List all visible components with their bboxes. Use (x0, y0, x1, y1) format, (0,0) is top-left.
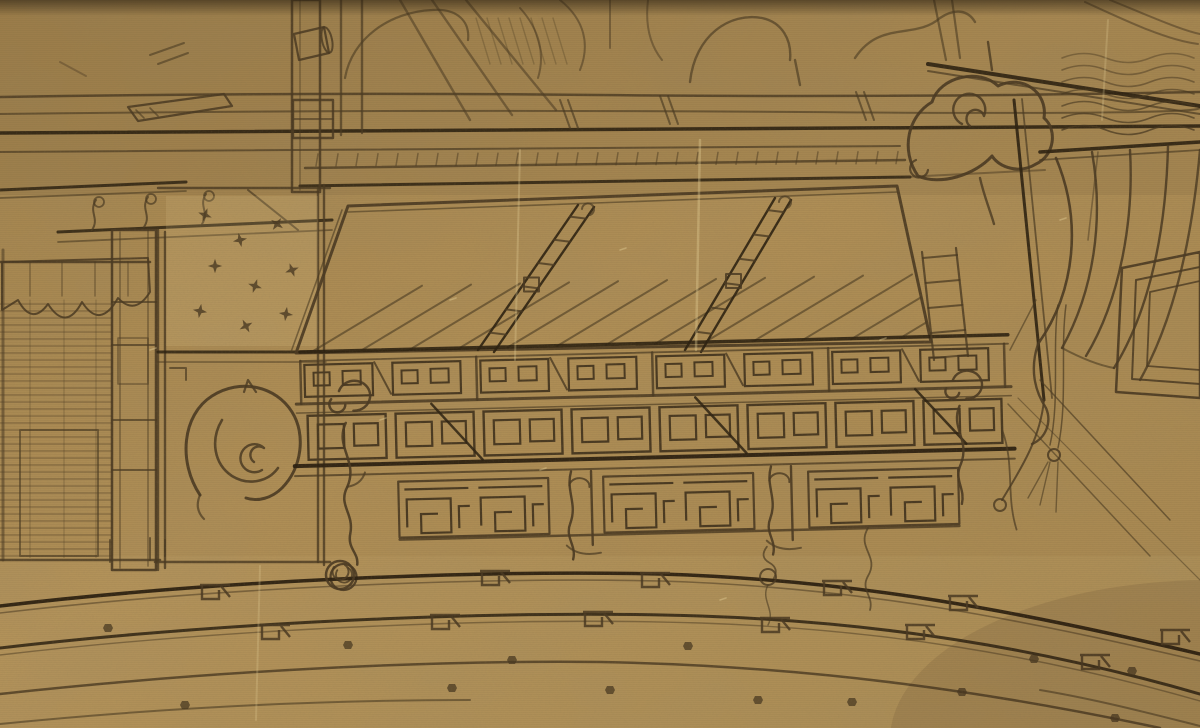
ship-painting-svg: Detail of a traditional Chinese ship see… (0, 0, 1200, 728)
artwork-photo: Detail of a traditional Chinese ship see… (0, 0, 1200, 728)
top-edge-shadow (0, 0, 1200, 16)
